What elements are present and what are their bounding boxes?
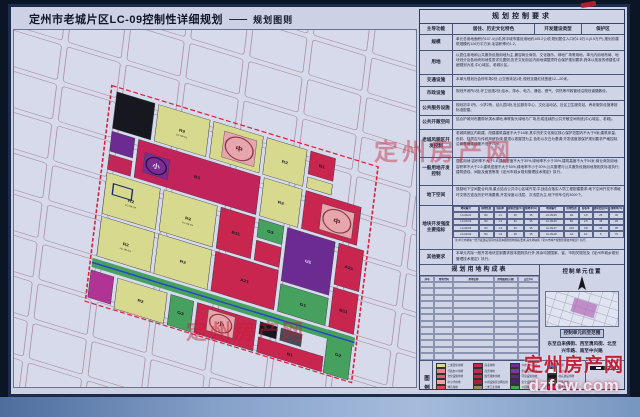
comp-cell [434, 353, 453, 359]
legend-title: 图例 [420, 361, 433, 390]
header-cell: 开发建设类型 [535, 24, 582, 34]
legend-item-label: 安全设施用地 [522, 380, 538, 384]
page-title: 定州市老城片区LC-09控制性详细规划 —— 规划图则 [13, 9, 417, 29]
header-cell: 主导功能 [420, 24, 453, 34]
publisher-box [585, 361, 624, 390]
legend-item-label: 商务用地 [485, 369, 495, 373]
control-requirements-panel: 规划控制要求 主导功能 居住、历史文化特色 开发建设类型 保护区 规模 单元总用… [419, 9, 625, 390]
legend-item-label: 供应设施用地 [522, 369, 538, 373]
legend-item-label: 中小学用地 [448, 380, 461, 384]
control-header-row: 主导功能 居住、历史文化特色 开发建设类型 保护区 [420, 24, 624, 35]
control-row-traffic: 交通设施 本单元规划社会停车场2处,公交首末站1处,规划支路红线宽度12—20米… [420, 75, 624, 87]
indicator-table: 地块编号用地性质容积率建筑密度(%)绿地率(%)地块编号用地性质容积率建筑密度(… [453, 206, 624, 238]
legend-item-label: 商业用地 [485, 363, 495, 367]
planning-map: R2LC-09-01R2R2B1B1R2B11R2LC-09-02R2LC-09… [13, 29, 417, 388]
comp-cell [518, 353, 539, 359]
legend-item-label: 文化设施用地 [448, 374, 464, 378]
legend-item-label: 水域 [559, 363, 564, 367]
header-cell: 保护区 [582, 24, 624, 34]
photo-frame: 定州市老城片区LC-09控制性详细规划 —— 规划图则 R2LC-09-01R2… [0, 0, 640, 417]
control-row-landuse: 用地 以居住用地和公共服务设施用地为主,兼容商业商务、文化娱乐、绿地广场等用地。… [420, 51, 624, 75]
unit-boundary-text: 东至自来佛街、西至清风街、北至兴华路、南至中兴路 [540, 338, 624, 357]
control-row-other: 其他要求 本单元内除一般开发地块控制要求按本图则执行外,其余均按国家、省、市相关… [420, 250, 624, 265]
legend-item-label: 二类工业用地 [485, 385, 501, 389]
comp-cell [494, 353, 518, 359]
legend-swatch-icon [436, 385, 446, 390]
control-row-municipal: 市政设施 规划开闭所1处,环卫设施2处;给水、排水、电力、通信、燃气、供热等市政… [420, 87, 624, 101]
plan-subtitle: 规划图则 [253, 13, 293, 26]
indicator-note: 注:单元内地块一经开发建设须同时满足本图则控制指标要求,其余地块按《定州市城乡规… [453, 238, 624, 244]
scale-bar [590, 366, 620, 371]
control-row-open-space: 公共开敞空间 结合护城河布置带状滨水绿地,串联街头绿地与广场,形成连续的公共开敞… [420, 116, 624, 130]
control-row-general: 一般用地开发控制 居住用地:容积率不大于1.8,建筑密度不大于30%,绿地率不小… [420, 158, 624, 186]
legend-item-label: 留白用地 [559, 369, 569, 373]
tables-row: 规划用地构成表 序号用地代码用地名称用地面积(公顷)占比(%) 控制单元位置 控… [420, 265, 624, 361]
legend-item-label: 环境设施用地 [522, 374, 538, 378]
legend-grid: 二类居住用地行政办公用地文化设施用地中小学用地体育用地医疗卫生用地社会福利用地文… [433, 361, 585, 390]
photo-bottom-edge [0, 397, 640, 417]
legend-item: 公园绿地 [510, 385, 545, 390]
control-row-indicators: 地块开发强度主要指标 地块编号用地性质容积率建筑密度(%)绿地率(%)地块编号用… [420, 206, 624, 250]
legend-swatch-icon [473, 385, 483, 390]
legend-item-label: 村庄建设用地 [559, 374, 575, 378]
legend-item-label: 行政办公用地 [448, 369, 464, 373]
legend-swatch-icon [510, 385, 520, 390]
legend-item-label: 特殊用地 [559, 380, 569, 384]
unit-highlight [570, 297, 597, 317]
legend-item: 规划单元边界 [547, 385, 582, 390]
plan-title: 定州市老城片区LC-09控制性详细规划 [29, 11, 223, 27]
control-row-oldtown: 老城风貌区开发控制 老城风貌区内新建、改建建筑高度不大于18米,其中历史文化街区… [420, 130, 624, 158]
north-arrow-icon [576, 276, 588, 291]
legend-item: 体育用地 [436, 385, 471, 390]
unit-location-column: 控制单元位置 控制单元四至范围 东至自来佛街、西至清风街、北至兴华路、南至中兴路 [540, 265, 624, 360]
legend-item-label: 公用设施营业网点用地 [485, 380, 509, 384]
control-row-scale: 规模 单元总用地面积约107.4公顷,其中城市建设用地约105.2公顷,规划居住… [420, 35, 624, 51]
comp-cell [453, 353, 493, 359]
city-block [392, 352, 417, 388]
legend-item-label: 娱乐康体用地 [485, 374, 501, 378]
legend-item-label: 规划单元边界 [559, 385, 575, 389]
control-row-underground: 地下空间 鼓励地下空间复合利用,重点结合公共中心区域开发;平战结合落实人防工程配… [420, 186, 624, 206]
legend-swatch-icon [547, 385, 557, 390]
title-dash: —— [229, 14, 247, 24]
panel-title: 规划控制要求 [420, 10, 624, 24]
legend-item-label: 公用设施用地 [522, 363, 538, 367]
header-cell: 居住、历史文化特色 [453, 24, 535, 34]
landuse-composition-table: 规划用地构成表 序号用地代码用地名称用地面积(公顷)占比(%) [420, 265, 540, 360]
control-row-public-service: 公共服务设施 规划初中1所、小学2所、幼儿园3处,社区服务中心、文化活动站、社区… [420, 101, 624, 116]
legend-item: 二类工业用地 [473, 385, 508, 390]
legend-item-label: 体育用地 [448, 385, 458, 389]
legend-row: 图例 二类居住用地行政办公用地文化设施用地中小学用地体育用地医疗卫生用地社会福利… [420, 361, 624, 390]
legend-item-label: 公园绿地 [522, 385, 532, 389]
map-panel: 定州市老城片区LC-09控制性详细规划 —— 规划图则 R2LC-09-01R2… [13, 9, 417, 390]
unit-location-minimap [545, 291, 619, 327]
comp-cell [420, 353, 434, 359]
legend-item-label: 二类居住用地 [448, 363, 464, 367]
planning-board: 定州市老城片区LC-09控制性详细规划 —— 规划图则 R2LC-09-01R2… [8, 4, 630, 397]
